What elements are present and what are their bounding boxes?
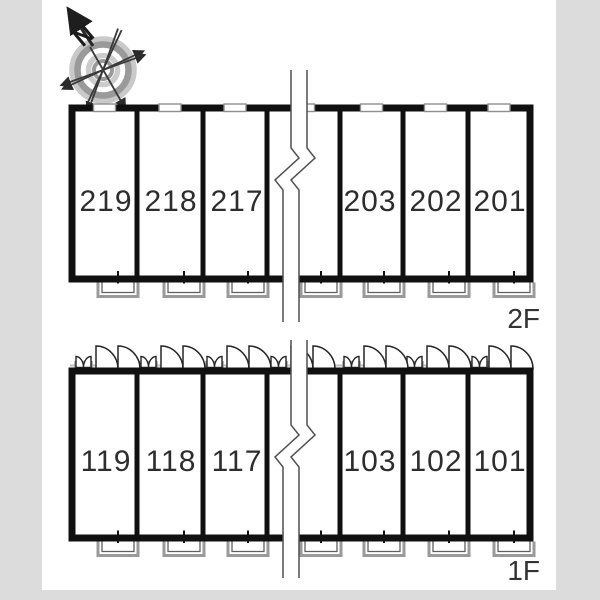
floor-label-2f: 2F — [507, 303, 540, 334]
unit-number-label: 219 — [79, 185, 132, 218]
unit-number-label: 203 — [343, 185, 396, 218]
unit-number-label: 201 — [473, 185, 526, 218]
unit-number-label: 202 — [409, 185, 462, 218]
window-icon — [488, 104, 510, 112]
unit-number-label: 101 — [473, 445, 526, 478]
unit-number-label: 119 — [81, 445, 132, 478]
unit-number-label: 218 — [144, 185, 197, 218]
window-icon — [159, 104, 181, 112]
window-icon — [425, 104, 447, 112]
unit-number-label: 118 — [146, 445, 197, 478]
unit-number-label: 102 — [409, 445, 462, 478]
unit-number-label: 117 — [212, 445, 263, 478]
window-icon — [224, 104, 246, 112]
floor-label-1f: 1F — [507, 555, 540, 586]
floor-plan-svg: N — [0, 0, 600, 600]
unit-number-label: 103 — [343, 445, 396, 478]
window-icon — [94, 104, 116, 112]
floor-plan-page: N — [0, 0, 600, 600]
unit-number-label: 217 — [210, 185, 263, 218]
window-icon — [361, 104, 383, 112]
